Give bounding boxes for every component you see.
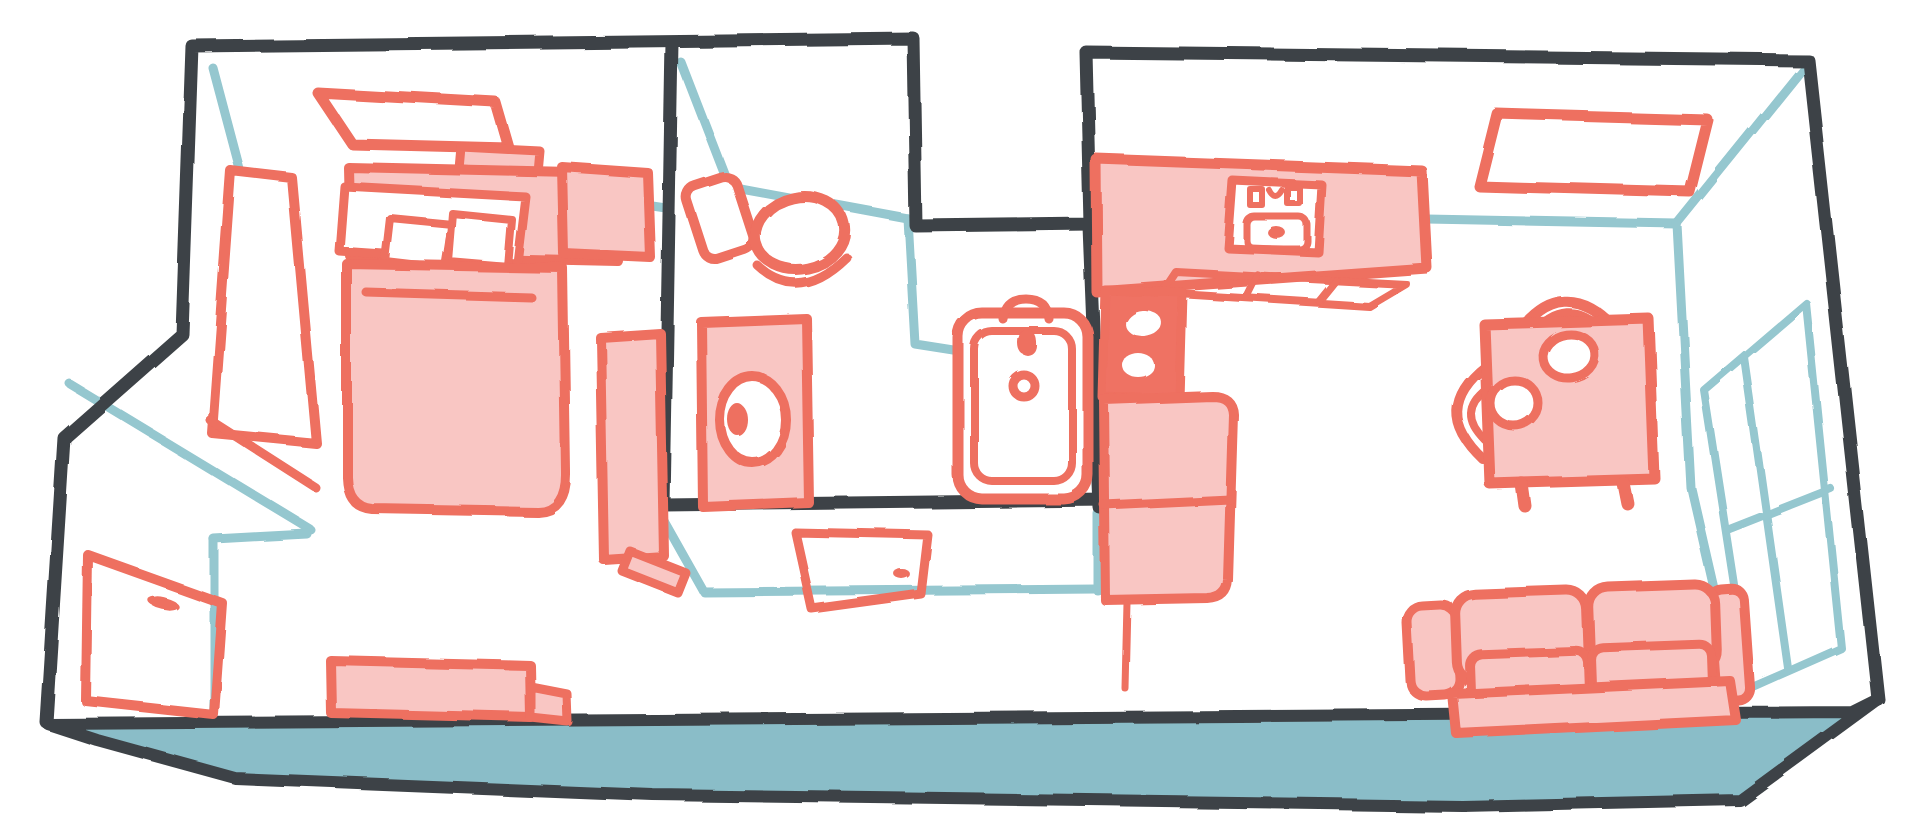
floor-plan-canvas — [0, 0, 1920, 832]
pillow-small-right — [448, 213, 511, 266]
plate-small — [1490, 380, 1538, 426]
window-transom — [1727, 489, 1831, 530]
front-door — [86, 555, 222, 715]
bathtub-drain — [1013, 375, 1035, 397]
tall-cabinet — [600, 333, 664, 560]
sofa — [1407, 584, 1751, 734]
floor-plan-illustration — [0, 0, 1920, 832]
stove — [1102, 290, 1183, 400]
bathroom-door-handle — [894, 569, 910, 579]
kitchen-back-wall-base-line — [1427, 219, 1677, 224]
bedroom-window — [318, 93, 509, 148]
wardrobe — [212, 171, 316, 443]
table-leg-left — [1522, 484, 1525, 506]
washing-machine-drum — [728, 404, 748, 436]
refrigerator-divider — [1104, 499, 1230, 505]
plate-large — [1540, 331, 1598, 382]
bench-step — [531, 687, 568, 722]
hall-corner-line — [214, 534, 307, 539]
bench — [330, 660, 531, 718]
bathtub-spout-drop — [1018, 330, 1037, 356]
bedroom — [210, 93, 651, 722]
refrigerator-edge-line — [1126, 604, 1128, 689]
living-room-window — [1479, 114, 1708, 192]
bed — [347, 264, 566, 512]
bathroom-open-door — [795, 532, 928, 609]
tall-cabinet-foot — [622, 551, 686, 593]
table-leg-right — [1623, 483, 1627, 503]
living-room — [1457, 114, 1708, 506]
bed-blanket-line — [366, 292, 531, 297]
stove-burner-bottom — [1123, 354, 1155, 378]
front-door-handle — [147, 594, 179, 612]
sink-drain — [1268, 227, 1286, 239]
kitchen — [1096, 159, 1427, 689]
nightstand — [562, 167, 651, 258]
entrance-hall — [86, 555, 222, 715]
sofa-base — [1453, 681, 1736, 734]
